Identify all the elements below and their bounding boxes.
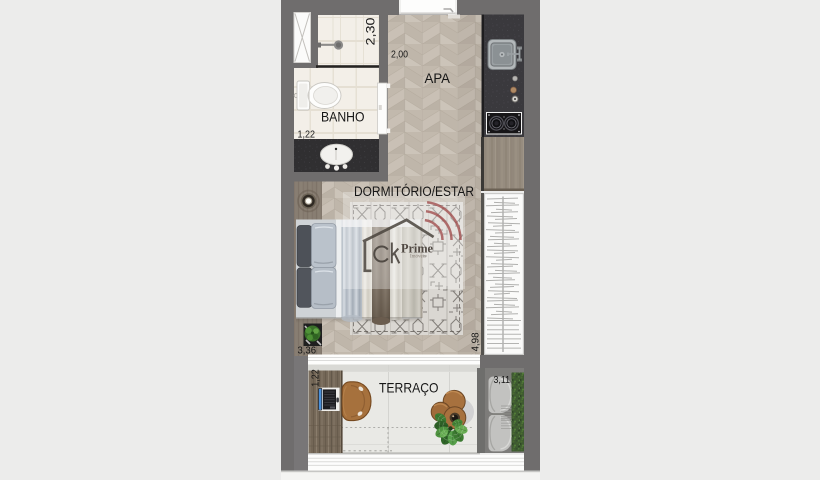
svg-text:TERRAÇO: TERRAÇO: [379, 380, 439, 396]
svg-text:BANHO: BANHO: [321, 109, 365, 125]
svg-text:2,00: 2,00: [391, 50, 408, 61]
svg-text:2,30: 2,30: [366, 18, 378, 46]
svg-text:1,22: 1,22: [310, 369, 321, 387]
svg-text:Imóveis: Imóveis: [410, 254, 426, 259]
svg-text:1,22: 1,22: [298, 130, 316, 141]
svg-text:Prime: Prime: [401, 241, 433, 256]
svg-text:DORMITÓRIO/ESTAR: DORMITÓRIO/ESTAR: [354, 183, 474, 199]
svg-text:3,11: 3,11: [494, 375, 511, 386]
svg-text:4,98: 4,98: [471, 332, 482, 351]
svg-text:APA: APA: [425, 70, 451, 86]
